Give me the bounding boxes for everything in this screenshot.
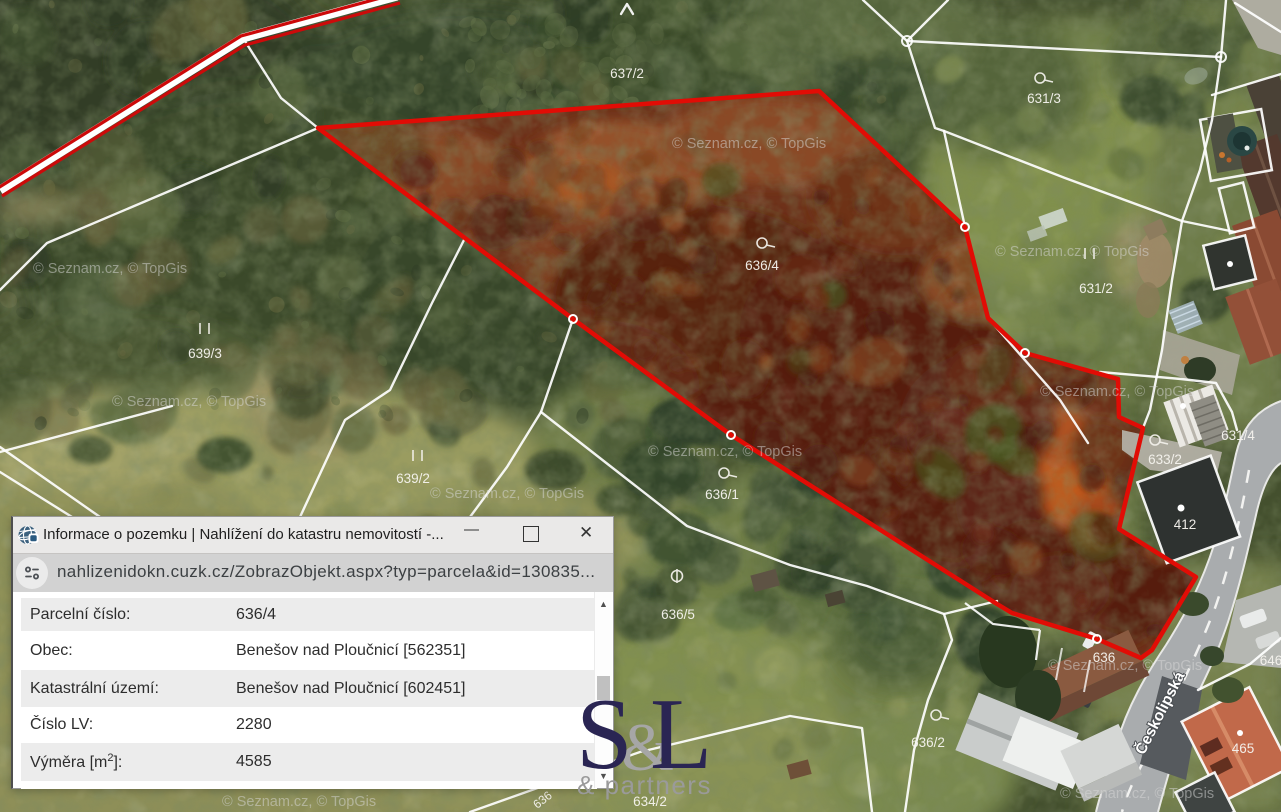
svg-text:631/2: 631/2: [1079, 281, 1113, 296]
svg-text:636/1: 636/1: [705, 487, 739, 502]
svg-text:© Seznam.cz, © TopGis: © Seznam.cz, © TopGis: [430, 486, 584, 502]
svg-text:636/5: 636/5: [661, 607, 695, 622]
svg-text:412: 412: [1174, 517, 1197, 532]
svg-text:© Seznam.cz, © TopGis: © Seznam.cz, © TopGis: [33, 261, 187, 277]
svg-text:636/4: 636/4: [745, 258, 779, 273]
svg-text:646: 646: [1260, 653, 1281, 668]
svg-text:© Seznam.cz, © TopGis: © Seznam.cz, © TopGis: [995, 244, 1149, 260]
svg-text:637/2: 637/2: [610, 66, 644, 81]
svg-text:© Seznam.cz, © TopGis: © Seznam.cz, © TopGis: [672, 136, 826, 152]
svg-text:636/2: 636/2: [911, 735, 945, 750]
svg-text:639/2: 639/2: [396, 471, 430, 486]
svg-text:© Seznam.cz, © TopGis: © Seznam.cz, © TopGis: [1060, 786, 1214, 802]
svg-text:© Seznam.cz, © TopGis: © Seznam.cz, © TopGis: [648, 444, 802, 460]
svg-text:© Seznam.cz, © TopGis: © Seznam.cz, © TopGis: [1040, 384, 1194, 400]
svg-text:639/3: 639/3: [188, 346, 222, 361]
svg-text:© Seznam.cz, © TopGis: © Seznam.cz, © TopGis: [222, 794, 376, 810]
svg-text:465: 465: [1232, 741, 1255, 756]
svg-text:631/3: 631/3: [1027, 91, 1061, 106]
svg-text:© Seznam.cz, © TopGis: © Seznam.cz, © TopGis: [112, 394, 266, 410]
svg-text:633/2: 633/2: [1148, 452, 1182, 467]
svg-text:631/4: 631/4: [1221, 428, 1255, 443]
svg-text:634/2: 634/2: [633, 794, 667, 809]
svg-text:© Seznam.cz, © TopGis: © Seznam.cz, © TopGis: [1048, 658, 1202, 674]
